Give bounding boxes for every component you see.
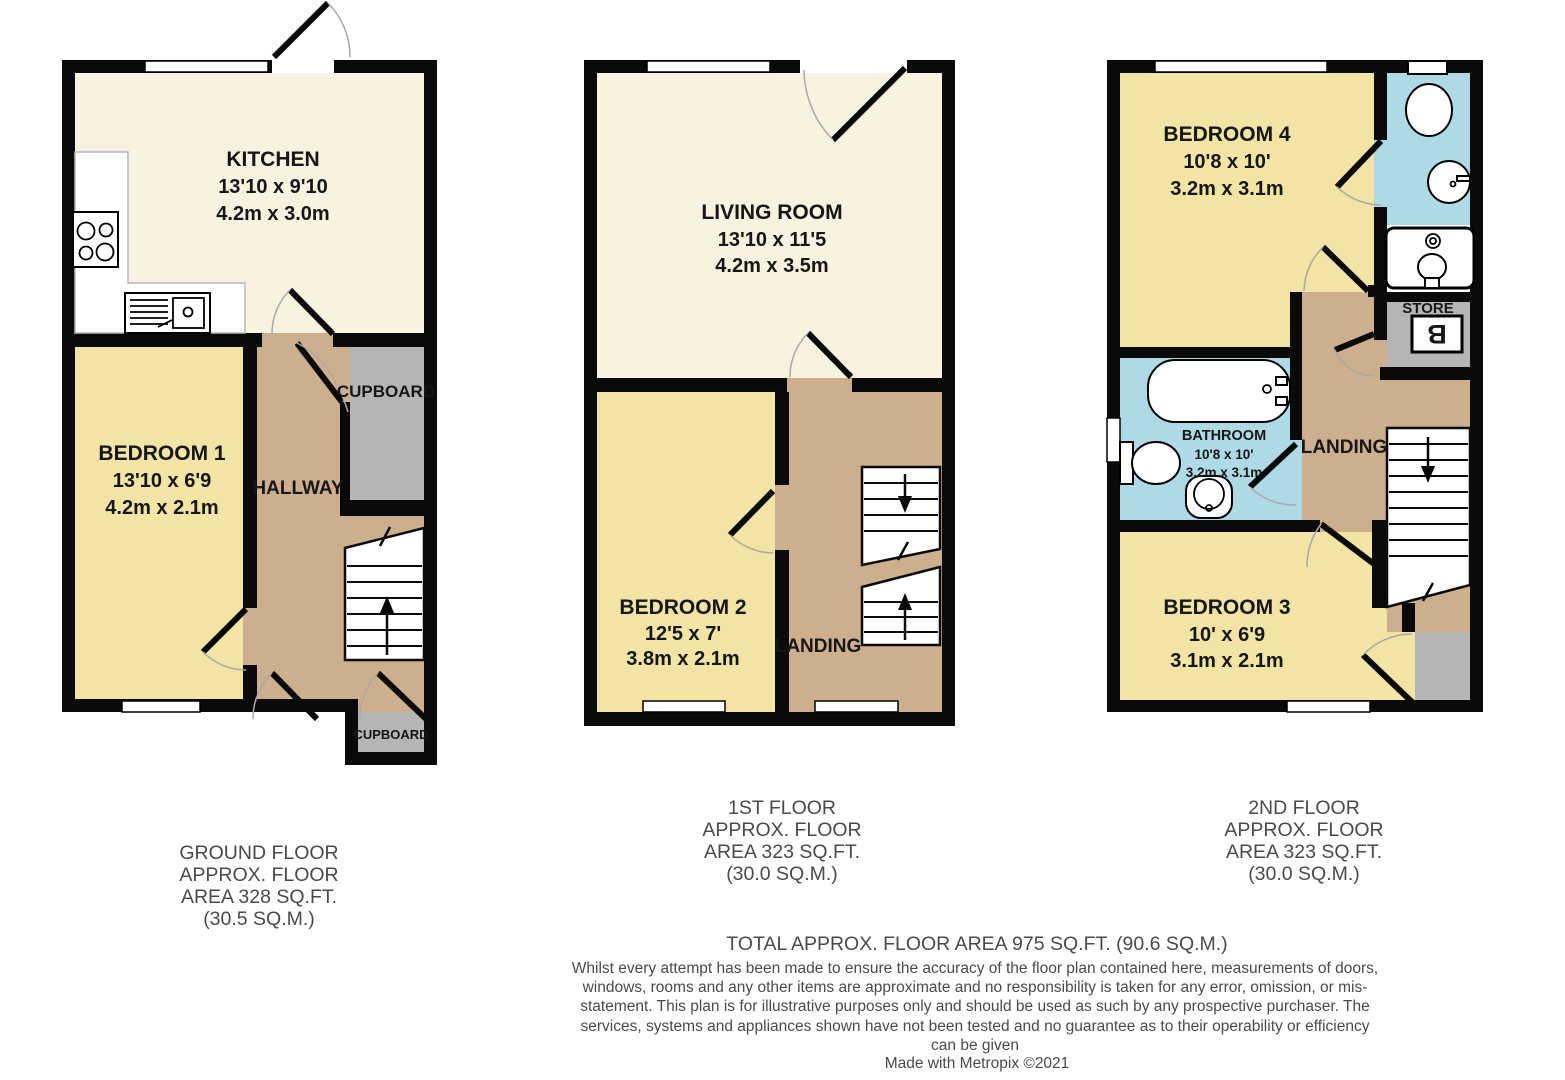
window xyxy=(145,61,268,72)
disclaimer: Whilst every attempt has been made to en… xyxy=(567,959,1383,1055)
living-room-dim-metric: 4.2m x 3.5m xyxy=(715,255,828,277)
living-room-label: LIVING ROOM xyxy=(701,201,842,224)
first-floor-caption: 1ST FLOOR APPROX. FLOOR AREA 323 SQ.FT. … xyxy=(637,797,927,885)
cupboard-entry-label: CUPBOARD xyxy=(353,727,428,742)
store-label: STORE xyxy=(1402,300,1453,317)
kitchen-dim-imperial: 13'10 x 9'10 xyxy=(218,176,328,198)
bedroom-3-dim-metric: 3.1m x 2.1m xyxy=(1170,650,1283,672)
boiler: B xyxy=(1412,316,1462,352)
window xyxy=(643,701,725,712)
bathroom-dim-metric: 3.2m x 3.1m xyxy=(1186,465,1263,480)
bedroom-2-dim-metric: 3.8m x 2.1m xyxy=(626,648,739,670)
window xyxy=(1155,61,1327,72)
window xyxy=(815,701,898,712)
hob xyxy=(73,212,118,267)
landing-2-band xyxy=(1387,380,1470,428)
hallway-label: HALLWAY xyxy=(252,478,343,499)
bedroom-1-dim-imperial: 13'10 x 6'9 xyxy=(113,470,212,492)
room-cupboard-hall xyxy=(350,347,424,500)
sink-unit xyxy=(1386,228,1474,288)
cupboard-hall-label: CUPBOARD xyxy=(337,382,435,401)
wash-basin-bathroom xyxy=(1186,476,1232,518)
landing-1-label: LANDING xyxy=(775,636,862,657)
boiler-symbol: B xyxy=(1427,319,1447,349)
bathtub xyxy=(1148,360,1290,422)
total-area: TOTAL APPROX. FLOOR AREA 975 SQ.FT. (90.… xyxy=(532,933,1422,956)
bathroom-label: BATHROOM xyxy=(1182,428,1266,444)
credit: Made with Metropix ©2021 xyxy=(532,1055,1422,1073)
wash-basin-wc xyxy=(1428,161,1470,203)
first-floor-plan: LIVING ROOM 13'10 x 11'5 4.2m x 3.5m BED… xyxy=(560,0,980,780)
bedroom-4-dim-imperial: 10'8 x 10' xyxy=(1183,151,1270,173)
bedroom-2-dim-imperial: 12'5 x 7' xyxy=(645,623,721,645)
bedroom-3-dim-imperial: 10' x 6'9 xyxy=(1189,624,1265,646)
bedroom-1-label: BEDROOM 1 xyxy=(98,442,226,465)
window xyxy=(1287,701,1370,712)
bedroom-2-label: BEDROOM 2 xyxy=(619,596,746,619)
stairs-second xyxy=(1387,428,1470,607)
living-room-dim-imperial: 13'10 x 11'5 xyxy=(718,229,827,251)
landing-2-stub xyxy=(1415,603,1470,632)
bedroom-3-label: BEDROOM 3 xyxy=(1163,596,1290,619)
toilet-bathroom xyxy=(1120,442,1180,484)
bedroom-1-dim-metric: 4.2m x 2.1m xyxy=(105,497,218,519)
second-floor-plan: B xyxy=(1085,0,1505,780)
room-living xyxy=(597,73,942,378)
toilet-wc xyxy=(1406,61,1452,136)
second-floor-caption: 2ND FLOOR APPROX. FLOOR AREA 323 SQ.FT. … xyxy=(1159,797,1449,885)
window xyxy=(647,61,770,72)
floorplan-page: KITCHEN 13'10 x 9'10 4.2m x 3.0m BEDROOM… xyxy=(0,0,1565,1080)
stairs-ground xyxy=(345,527,424,660)
bathroom-dim-imperial: 10'8 x 10' xyxy=(1195,447,1254,462)
room-cupboard-bed3 xyxy=(1415,632,1470,700)
ground-floor-plan: KITCHEN 13'10 x 9'10 4.2m x 3.0m BEDROOM… xyxy=(40,0,460,780)
kitchen-label: KITCHEN xyxy=(226,148,319,171)
bedroom-4-dim-metric: 3.2m x 3.1m xyxy=(1170,178,1283,200)
landing-2-label: LANDING xyxy=(1301,437,1388,458)
kitchen-dim-metric: 4.2m x 3.0m xyxy=(216,203,329,225)
window xyxy=(122,701,200,712)
room-bedroom-1 xyxy=(75,347,243,699)
bedroom-4-label: BEDROOM 4 xyxy=(1163,123,1291,146)
window xyxy=(1107,418,1120,462)
kitchen-sink xyxy=(125,293,210,333)
ground-floor-caption: GROUND FLOOR APPROX. FLOOR AREA 328 SQ.F… xyxy=(114,842,404,930)
